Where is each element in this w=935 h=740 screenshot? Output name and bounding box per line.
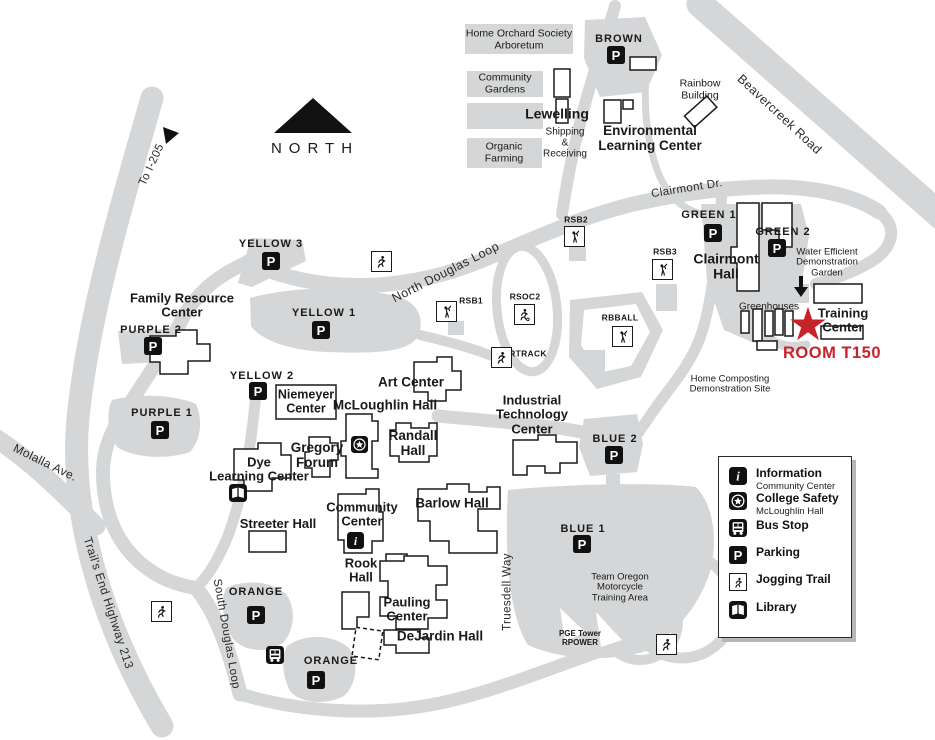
- svg-text:i: i: [736, 470, 740, 484]
- parking-icon-blue1: P: [573, 535, 591, 553]
- legend-label: College Safety: [756, 492, 839, 506]
- label-mcloughlin-hall: McLoughlin Hall: [333, 399, 437, 414]
- label-water-garden: Water Efficient Demonstration Garden: [796, 247, 858, 278]
- legend-label: Information: [756, 467, 835, 481]
- parking-icon-yellow1: P: [312, 321, 330, 339]
- label-pauling-center: Pauling Center: [384, 596, 431, 625]
- map-legend: i InformationCommunity Center College Sa…: [718, 456, 852, 638]
- industrial-technology-center-shape: [513, 435, 577, 475]
- label-green2-lot: GREEN 2: [755, 226, 810, 238]
- label-purple2-lot: PURPLE 2: [120, 324, 182, 336]
- label-rtrack: RTRACK: [509, 349, 547, 358]
- label-community-center: Community Center: [326, 501, 398, 530]
- parking-icon-brown: P: [607, 46, 625, 64]
- rook-hall-shape: [342, 592, 369, 629]
- orange-lot-2-shape: [283, 637, 355, 702]
- jogging-trail-icon-rtrack: [491, 347, 512, 368]
- legend-item-bus-stop: Bus Stop: [729, 519, 809, 537]
- label-streeter-hall: Streeter Hall: [240, 517, 317, 531]
- label-lewelling: Lewelling: [525, 106, 589, 121]
- i205-arrow: [163, 127, 179, 144]
- label-blue2-lot: BLUE 2: [592, 433, 637, 445]
- svg-text:P: P: [254, 384, 263, 399]
- label-rsb3: RSB3: [653, 247, 677, 256]
- svg-text:P: P: [312, 673, 321, 688]
- label-yellow2-lot: YELLOW 2: [230, 370, 294, 382]
- parking-icon-green1: P: [704, 224, 722, 242]
- parking-icon-orange1: P: [247, 606, 265, 624]
- label-pge-tower: PGE Tower RPOWER: [559, 630, 601, 648]
- room-t150-star-marker: ★: [787, 301, 828, 347]
- label-family-resource-center: Family Resource Center: [130, 292, 234, 321]
- label-niemeyer-center: Niemeyer Center: [278, 388, 334, 416]
- svg-text:P: P: [149, 339, 158, 354]
- parking-icon-blue2: P: [605, 446, 623, 464]
- svg-text:P: P: [734, 548, 743, 563]
- legend-label: Library: [756, 601, 797, 615]
- parking-icon-purple1: P: [151, 421, 169, 439]
- legend-item-parking: P Parking: [729, 546, 800, 564]
- label-rsb1: RSB1: [459, 296, 483, 305]
- streeter-hall-shape: [249, 531, 286, 552]
- label-rainbow-building: Rainbow Building: [680, 78, 721, 101]
- legend-item-college-safety: College SafetyMcLoughlin Hall: [729, 492, 839, 517]
- legend-label: Jogging Trail: [756, 573, 831, 587]
- library-icon-dye: [229, 484, 247, 502]
- information-icon: i: [729, 467, 747, 485]
- label-yellow3-lot: YELLOW 3: [239, 238, 303, 250]
- north-arrow: [274, 98, 352, 133]
- label-randall-hall: Randall Hall: [389, 429, 438, 459]
- label-community-gardens: Community Gardens: [478, 72, 531, 95]
- label-industrial-technology-center: Industrial Technology Center: [496, 394, 568, 437]
- information-icon-community-center: i: [347, 532, 364, 549]
- parking-icon-purple2: P: [144, 337, 162, 355]
- label-home-composting: Home Composting Demonstration Site: [690, 375, 771, 396]
- label-blue1-lot: BLUE 1: [560, 523, 605, 535]
- label-yellow1-lot: YELLOW 1: [292, 307, 356, 319]
- jogging-trail-icon-south: [656, 634, 677, 655]
- label-team-oregon: Team Oregon Motorcycle Training Area: [591, 572, 649, 603]
- college-safety-icon: [729, 492, 747, 510]
- svg-text:P: P: [773, 241, 782, 256]
- legend-item-jogging-trail: Jogging Trail: [729, 573, 831, 591]
- svg-text:P: P: [252, 608, 261, 623]
- label-rsoc2: RSOC2: [510, 292, 541, 301]
- label-truesdell-way: Truesdell Way: [502, 553, 515, 631]
- parking-icon-yellow2: P: [249, 382, 267, 400]
- label-arboretum: Home Orchard Society Arboretum: [466, 28, 572, 51]
- legend-label: Parking: [756, 546, 800, 560]
- label-orange-lot-2: ORANGE: [304, 655, 358, 667]
- legend-item-library: Library: [729, 601, 797, 619]
- label-brown-lot: BROWN: [595, 33, 643, 45]
- svg-text:P: P: [156, 423, 165, 438]
- label-environmental-learning-center: Environmental Learning Center: [598, 124, 702, 154]
- svg-text:P: P: [267, 254, 276, 269]
- barlow-hall-shape: [418, 484, 500, 553]
- label-room-t150: ROOM T150: [783, 344, 881, 362]
- library-icon: [729, 601, 747, 619]
- bus-stop-icon: [729, 519, 747, 537]
- svg-text:P: P: [578, 537, 587, 552]
- baseball-icon-rsb2: [564, 226, 585, 247]
- svg-text:P: P: [709, 226, 718, 241]
- label-organic-farming: Organic Farming: [485, 141, 524, 164]
- legend-sublabel: McLoughlin Hall: [756, 506, 839, 517]
- parking-icon-orange2: P: [307, 671, 325, 689]
- legend-item-information: i InformationCommunity Center: [729, 467, 835, 492]
- label-purple1-lot: PURPLE 1: [131, 407, 193, 419]
- bus-stop-icon-orange: [266, 646, 284, 664]
- label-orange-lot-1: ORANGE: [229, 586, 283, 598]
- soccer-icon-rsoc2: [514, 304, 535, 325]
- svg-text:P: P: [612, 48, 621, 63]
- label-rbball: RBBALL: [602, 313, 639, 322]
- label-shipping-receiving: Shipping & Receiving: [543, 127, 587, 160]
- compass-label: NORTH: [271, 141, 359, 158]
- jogging-trail-icon: [729, 573, 747, 591]
- parking-icon-yellow3: P: [262, 252, 280, 270]
- label-rsb2: RSB2: [564, 215, 588, 224]
- label-barlow-hall: Barlow Hall: [415, 497, 489, 512]
- label-clairmont-hall: Clairmont Hall: [693, 252, 758, 283]
- jogging-trail-icon-west: [151, 601, 172, 622]
- parking-icon: P: [729, 546, 747, 564]
- baseball-icon-rsb3: [652, 259, 673, 280]
- label-dejardin-hall: DeJardin Hall: [397, 630, 483, 645]
- svg-text:P: P: [610, 448, 619, 463]
- label-green1-lot: GREEN 1: [681, 209, 736, 221]
- legend-label: Bus Stop: [756, 519, 809, 533]
- svg-text:P: P: [317, 323, 326, 338]
- label-rook-hall: Rook Hall: [345, 557, 378, 586]
- campus-map: To I-205 Beavercreek Road Clairmont Dr. …: [0, 0, 935, 740]
- parking-icon-green2: P: [768, 239, 786, 257]
- jogging-trail-icon-north: [371, 251, 392, 272]
- baseball-icon-rsb1: [436, 301, 457, 322]
- baseball-icon-rbball: [612, 326, 633, 347]
- college-safety-icon-mcloughlin: [351, 436, 368, 453]
- label-art-center: Art Center: [378, 376, 444, 391]
- label-dye-learning-center: Dye Learning Center: [209, 456, 309, 485]
